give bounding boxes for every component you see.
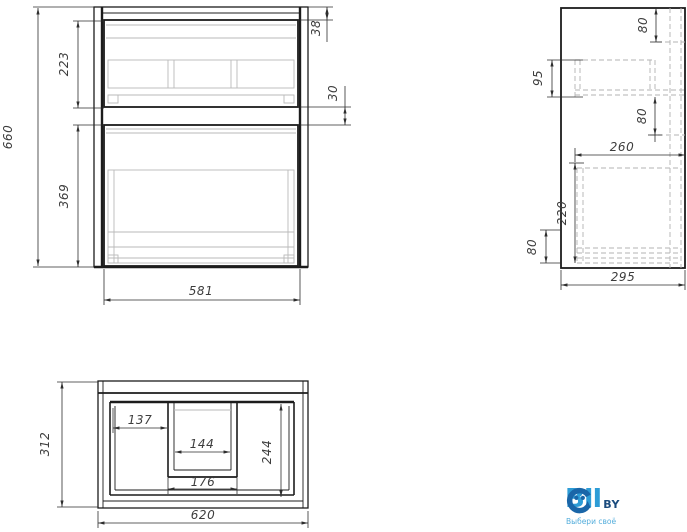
logo-text-by: BY xyxy=(603,499,620,510)
dim-front-overall-height: 660 xyxy=(1,125,15,149)
dim-side-mid-inset: 80 xyxy=(635,108,649,124)
side-view: 80 95 80 260 220 80 295 xyxy=(525,8,685,290)
dim-plan-cutout-inner: 144 xyxy=(190,437,214,451)
dim-front-top-reveal: 38 xyxy=(309,20,323,36)
dim-plan-left-bay: 137 xyxy=(128,413,152,427)
plan-view: 312 137 144 244 176 620 xyxy=(38,381,308,528)
dim-front-width: 581 xyxy=(189,284,213,298)
dim-plan-bay-depth: 244 xyxy=(260,440,274,464)
dim-side-top-inset: 80 xyxy=(636,17,650,33)
front-bottom-drawer xyxy=(104,125,298,266)
logo-tagline: Выбери своё xyxy=(566,517,616,526)
dim-front-drawer-gap: 30 xyxy=(326,85,340,101)
technical-drawing-page: 660 223 369 38 30 581 xyxy=(0,0,687,532)
dim-side-depth: 295 xyxy=(611,270,635,284)
dim-front-bottom-drawer: 369 xyxy=(57,184,71,208)
dim-side-rail-height: 95 xyxy=(531,70,545,86)
dim-plan-depth: 312 xyxy=(38,432,52,456)
side-outline xyxy=(561,8,685,268)
dim-side-bottom-inset: 80 xyxy=(525,239,539,255)
dim-front-top-drawer: 223 xyxy=(57,52,71,76)
front-top-drawer xyxy=(104,20,298,107)
brand-logo-row: BI I BY xyxy=(565,486,685,512)
side-hidden-lines xyxy=(575,8,685,268)
logo-g-smiley-icon xyxy=(566,486,595,517)
dim-side-inner-width: 260 xyxy=(610,140,634,154)
front-view: 660 223 369 38 30 581 xyxy=(1,7,351,305)
dim-side-drawer-depth: 220 xyxy=(555,201,569,225)
dim-plan-overall-width: 620 xyxy=(191,508,215,522)
brand-logo: BI I BY Выбери своё xyxy=(565,486,685,530)
dim-plan-cutout-outer: 176 xyxy=(191,475,215,489)
plan-dimensions: 312 137 144 244 176 620 xyxy=(38,382,308,528)
drawing-canvas: 660 223 369 38 30 581 xyxy=(0,0,687,532)
